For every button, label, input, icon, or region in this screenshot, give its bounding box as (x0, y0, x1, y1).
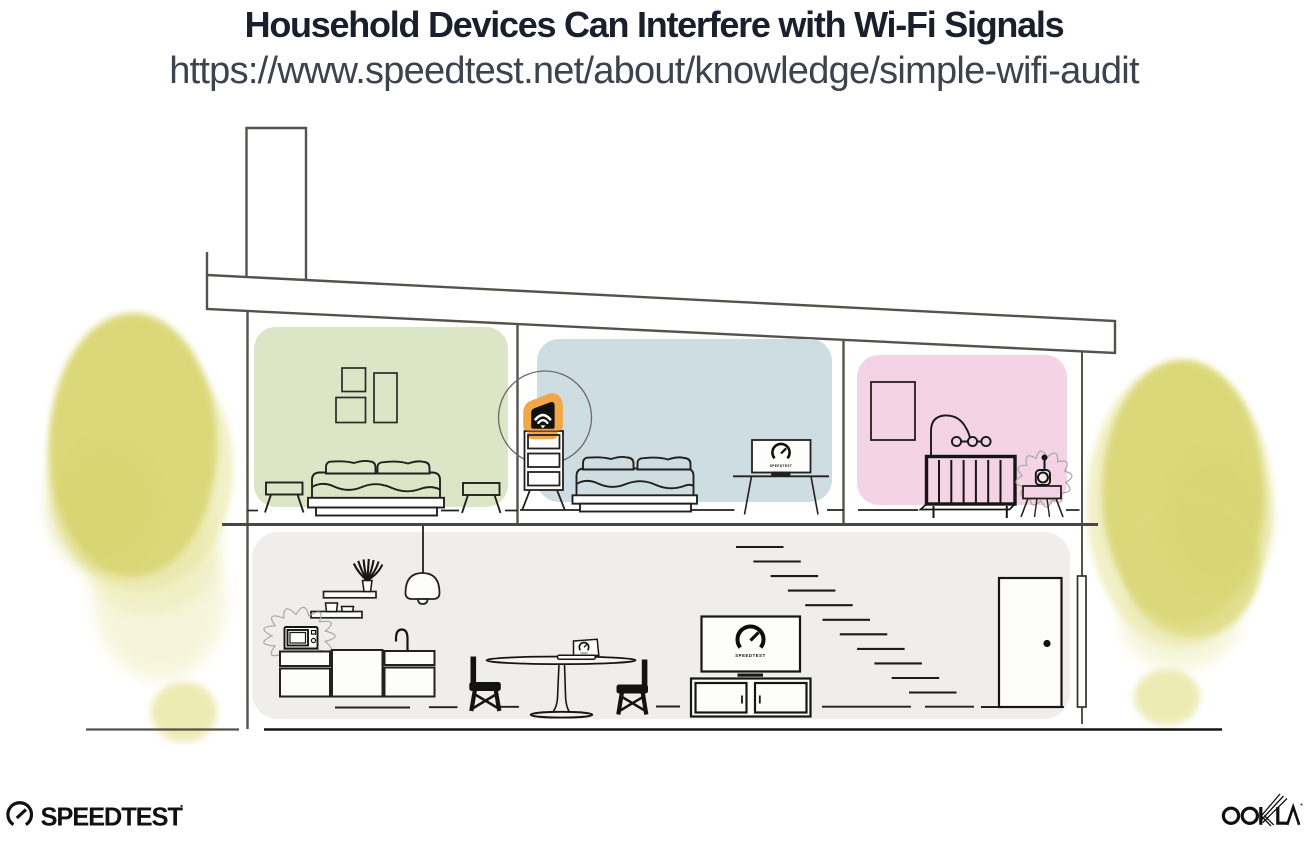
svg-text:SPEEDTEST: SPEEDTEST (41, 804, 184, 832)
svg-text:SPEEDTEST: SPEEDTEST (735, 653, 766, 658)
svg-text:SPEEDTEST: SPEEDTEST (770, 464, 793, 468)
